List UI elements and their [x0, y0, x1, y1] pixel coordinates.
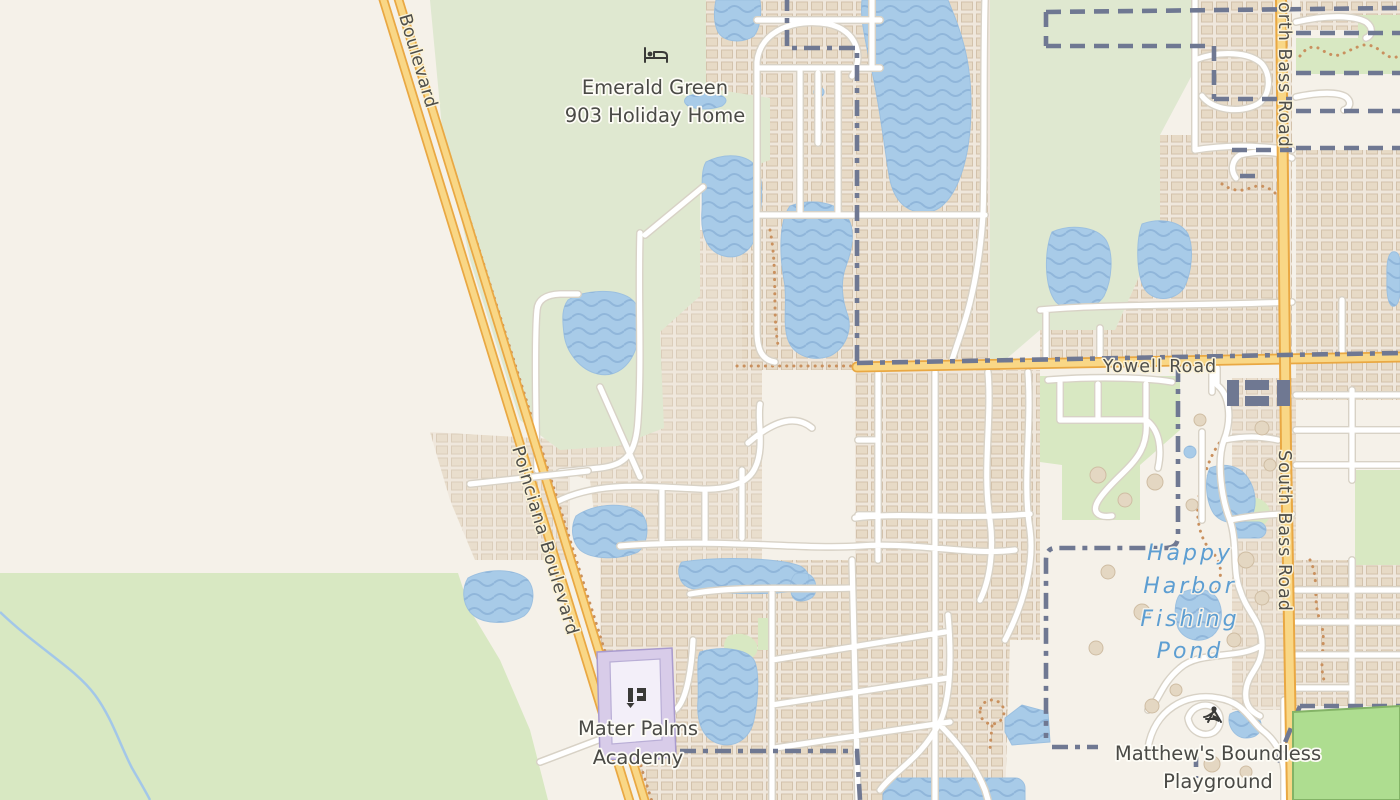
- water-label-pond[interactable]: Pond: [1157, 639, 1224, 664]
- poi-label-emerald-line1[interactable]: Emerald Green: [582, 76, 728, 99]
- road-label-north-bass[interactable]: orth Bass Road: [1274, 2, 1294, 148]
- road-label-south-bass[interactable]: South Bass Road: [1274, 450, 1294, 612]
- school-area: [597, 648, 676, 762]
- water-label-happy[interactable]: Happy: [1147, 541, 1233, 566]
- water-label-fishing[interactable]: Fishing: [1140, 607, 1239, 632]
- poi-label-emerald-line2[interactable]: 903 Holiday Home: [565, 104, 746, 127]
- water-label-harbor[interactable]: Harbor: [1143, 574, 1237, 599]
- map-canvas[interactable]: Boulevard Poinciana Boulevard Yowell Roa…: [0, 0, 1400, 800]
- poi-label-mater-line1[interactable]: Mater Palms: [578, 717, 698, 740]
- poi-label-mater-line2[interactable]: Academy: [593, 746, 684, 769]
- map-svg: Boulevard Poinciana Boulevard Yowell Roa…: [0, 0, 1400, 800]
- poi-label-matthews-line2[interactable]: Playground: [1163, 770, 1273, 793]
- poi-label-matthews-line1[interactable]: Matthew's Boundless: [1115, 742, 1321, 765]
- road-label-yowell[interactable]: Yowell Road: [1102, 357, 1217, 377]
